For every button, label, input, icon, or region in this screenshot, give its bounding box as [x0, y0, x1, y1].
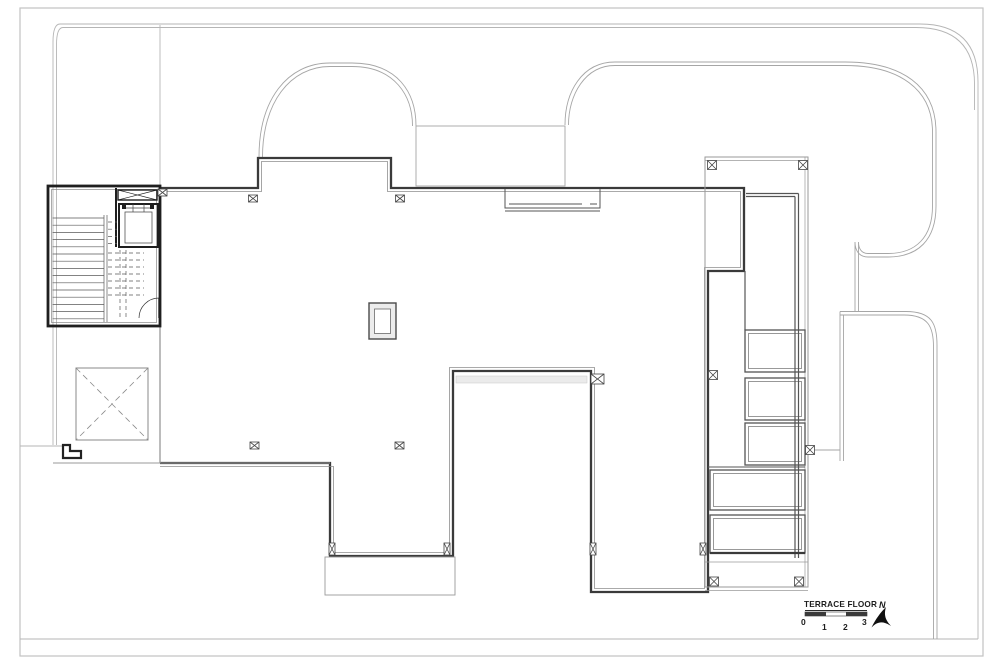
planter-box — [710, 515, 805, 553]
scale-tick-3: 3 — [862, 617, 867, 627]
parapet-top — [746, 194, 799, 197]
elevator-door-jamb-left — [122, 205, 126, 209]
elevator-door-jamb-right — [150, 205, 154, 209]
site-boundary — [20, 24, 978, 639]
staircase — [53, 215, 160, 322]
road-right-inner — [840, 315, 934, 639]
right-balcony-strip — [705, 157, 808, 591]
column-marker — [795, 577, 804, 586]
planter-boxes — [710, 330, 805, 553]
column-markers — [158, 161, 815, 587]
door-swing-arc — [139, 298, 159, 318]
column-marker — [590, 543, 596, 555]
left-arch-inner — [263, 67, 413, 158]
planter-box-inner — [749, 427, 802, 462]
column-marker — [444, 543, 450, 555]
column-marker — [708, 161, 717, 170]
skylight-void-x — [76, 368, 148, 440]
shaft-projection-dashed — [120, 250, 126, 320]
column-marker — [710, 577, 719, 586]
scale-tick-1: 1 — [822, 622, 827, 632]
planter-box-inner — [749, 334, 802, 369]
scale-bar: 0 1 2 3 — [801, 612, 867, 632]
column-marker — [158, 189, 167, 196]
courtyard-lintel-band — [456, 376, 587, 383]
scale-tick-2: 2 — [843, 622, 848, 632]
column-marker — [396, 195, 405, 202]
column-marker — [591, 374, 604, 384]
column-marker — [250, 442, 259, 449]
column-marker — [395, 442, 404, 449]
middle-roof-rect — [416, 126, 565, 186]
stair-rail — [104, 215, 107, 322]
column-marker — [700, 543, 706, 555]
wall-inner — [160, 162, 741, 589]
planter-box-inner — [714, 474, 802, 507]
elevator-door — [125, 204, 152, 212]
sheet-border — [20, 8, 983, 656]
gutter-detail — [63, 445, 81, 458]
scale-bar-segment — [805, 612, 826, 616]
roof-hatch-inner — [375, 309, 391, 334]
planter-box — [745, 330, 805, 372]
terrace-floor-plan-sheet: TERRACE FLOOR 0 1 2 3 N — [0, 0, 1000, 666]
title-block: TERRACE FLOOR 0 1 2 3 N — [801, 600, 891, 632]
floor-plan-canvas: TERRACE FLOOR 0 1 2 3 N — [0, 0, 1000, 666]
column-marker — [329, 543, 335, 555]
stair-treads — [53, 218, 105, 319]
column-marker — [799, 161, 808, 170]
scale-bar-segment — [846, 612, 867, 616]
site-left-road-inner — [57, 28, 64, 446]
column-marker — [709, 371, 718, 380]
balcony-parapet-walls — [708, 194, 805, 559]
planter-box — [745, 378, 805, 420]
parapet-detail — [505, 189, 600, 211]
elevator-car — [125, 212, 152, 243]
balcony-edge-inner — [705, 157, 808, 591]
site-right-line-inner — [916, 28, 975, 111]
plan-title: TERRACE FLOOR — [804, 600, 877, 609]
column-marker — [806, 446, 815, 455]
wall-outer — [160, 158, 744, 592]
planter-box-inner — [714, 519, 802, 550]
elevator-vent-x — [118, 190, 157, 200]
parapet-right — [795, 194, 799, 559]
planter-box — [710, 470, 805, 510]
left-arch-outer — [259, 63, 416, 157]
column-marker — [249, 195, 258, 202]
lower-roof-ledge — [325, 557, 455, 595]
road-right-outer — [840, 312, 937, 640]
planter-box-inner — [749, 382, 802, 417]
right-roof-outer — [565, 62, 936, 311]
planter-box — [745, 423, 805, 465]
scale-tick-0: 0 — [801, 617, 806, 627]
north-arrow-icon — [872, 607, 892, 628]
site-right-line — [920, 24, 978, 639]
